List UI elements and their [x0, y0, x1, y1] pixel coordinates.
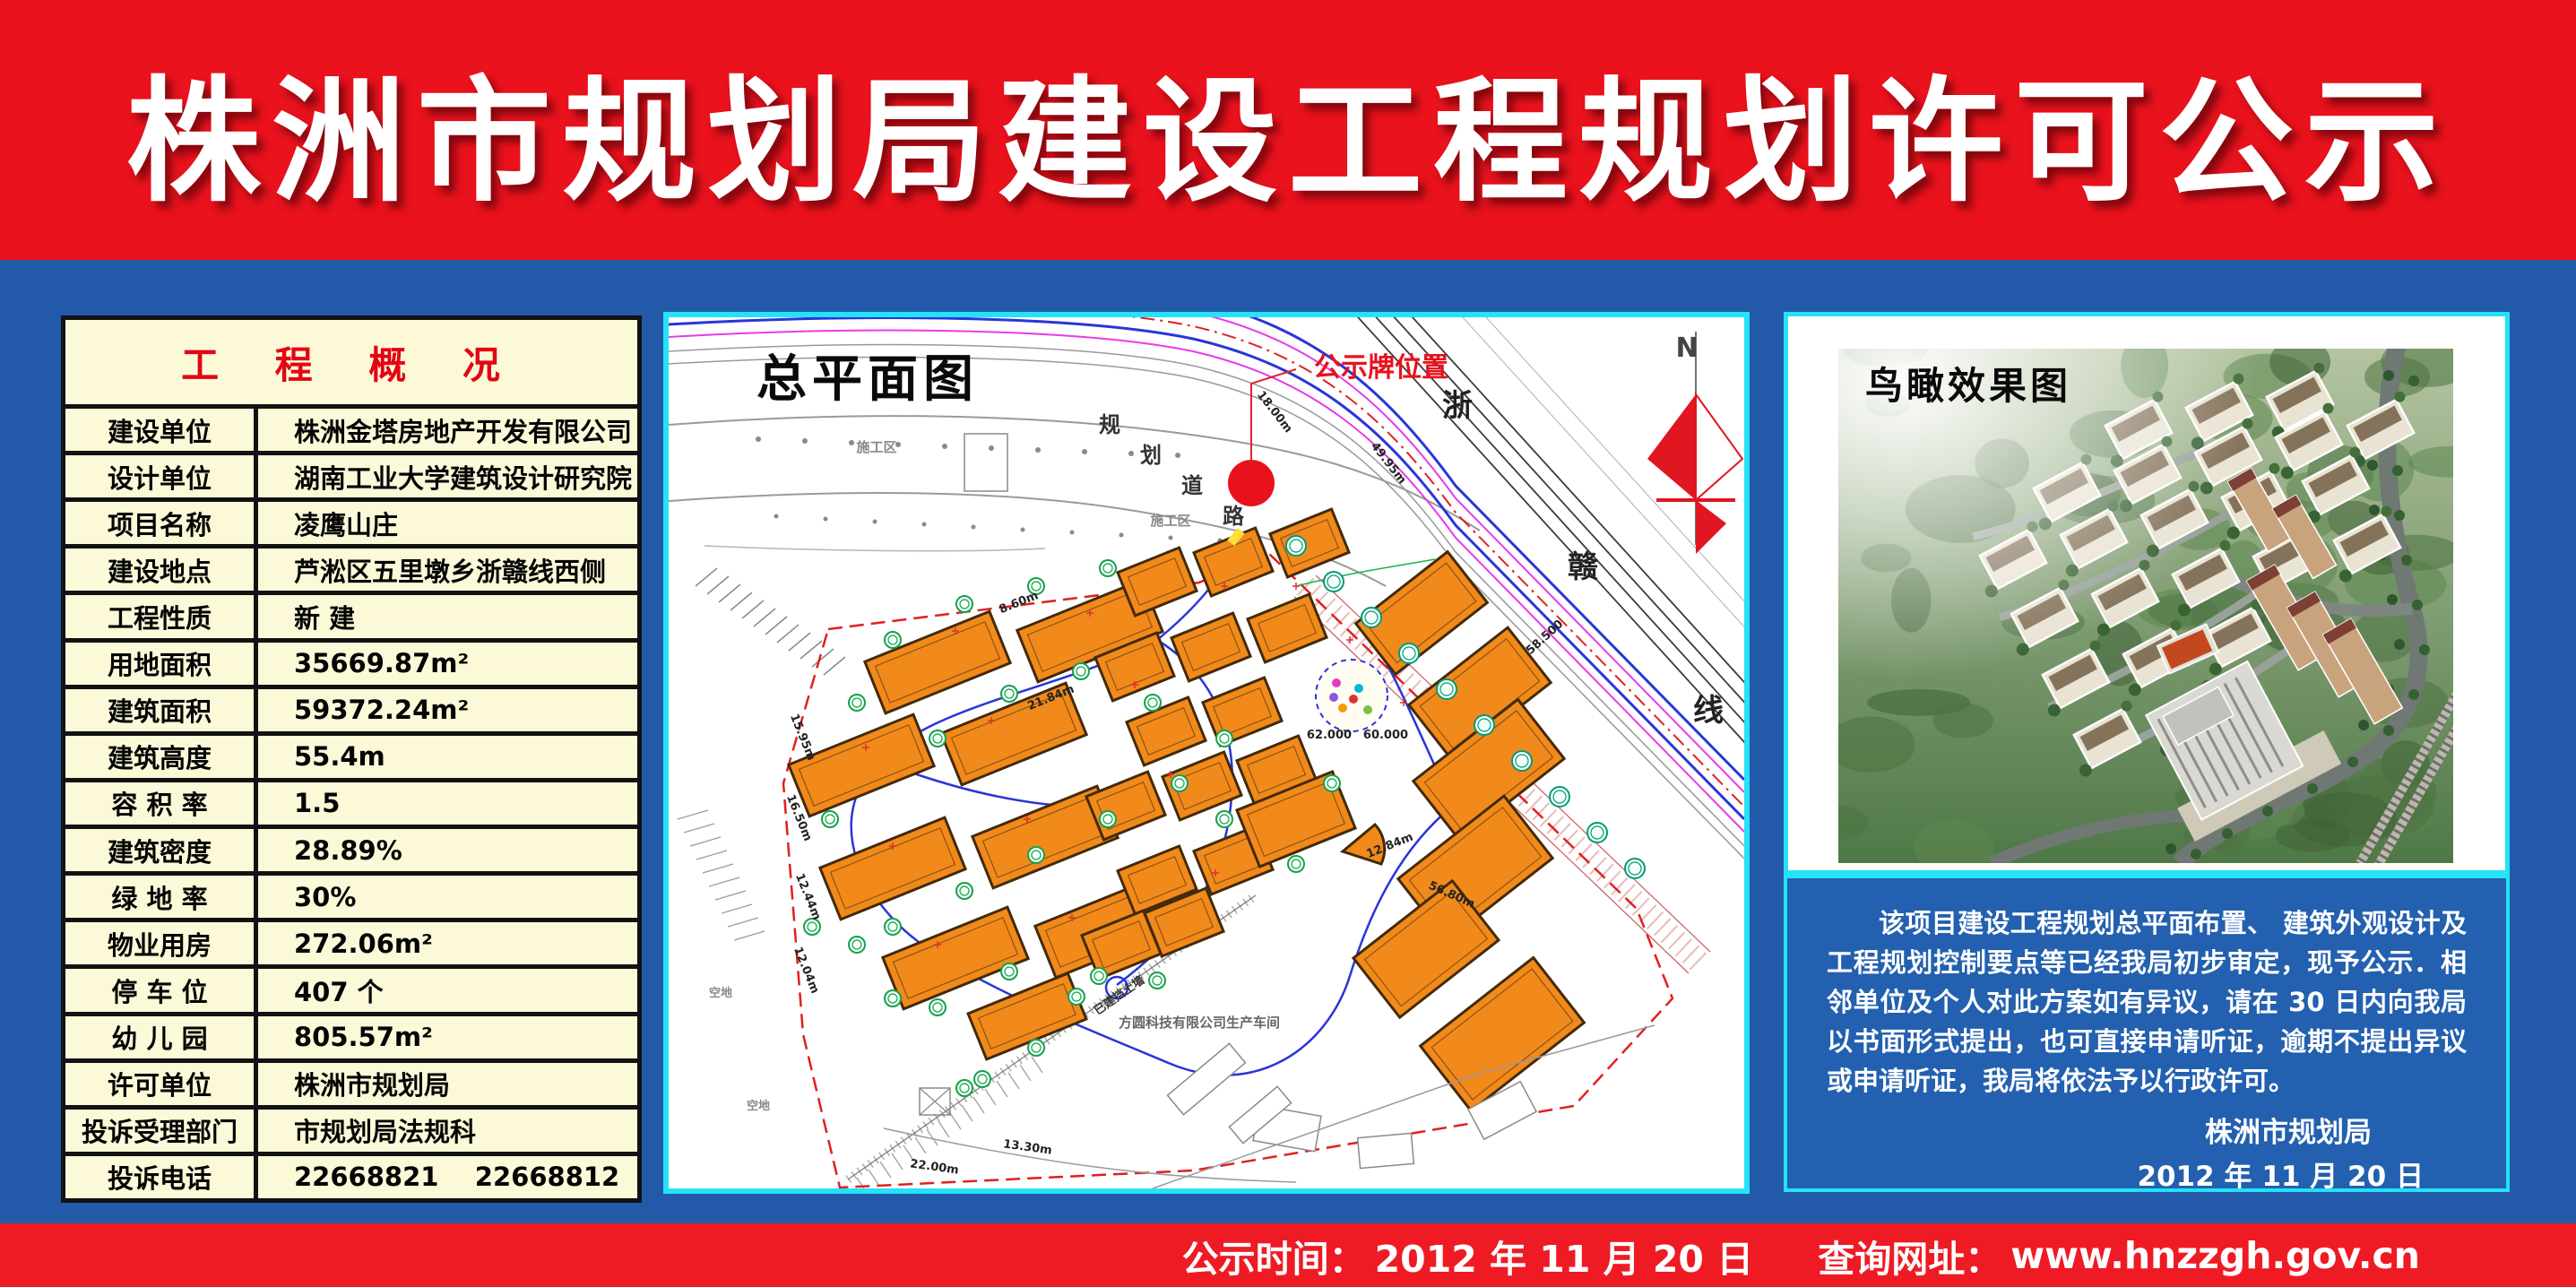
- notice-board-dot: [1228, 460, 1275, 506]
- row-value: 805.57m²: [258, 1016, 637, 1058]
- row-label: 用地面积: [65, 643, 258, 685]
- row-value: 407 个: [258, 969, 637, 1011]
- row-label: 停 车 位: [65, 969, 258, 1011]
- row-label: 建筑高度: [65, 736, 258, 778]
- row-value: 新 建: [258, 595, 637, 637]
- svg-text:施工区: 施工区: [856, 439, 896, 455]
- row-label: 建设单位: [65, 409, 258, 451]
- row-label: 容 积 率: [65, 782, 258, 825]
- svg-text:公示牌位置: 公示牌位置: [1314, 352, 1448, 384]
- notice-board: 株洲市规划局建设工程规划许可公示 工 程 概 况 建设单位株洲金塔房地产开发有限…: [0, 0, 2576, 1287]
- row-value: 芦淞区五里墩乡浙赣线西侧: [258, 548, 637, 591]
- table-row: 幼 儿 园805.57m²: [65, 1012, 637, 1058]
- row-value: 凌鹰山庄: [258, 502, 637, 544]
- row-label: 工程性质: [65, 595, 258, 637]
- svg-text:方圆科技有限公司生产车间: 方圆科技有限公司生产车间: [1119, 1015, 1280, 1031]
- table-row: 许可单位株洲市规划局: [65, 1058, 637, 1105]
- svg-text:62.000: 62.000: [1307, 729, 1352, 742]
- publish-time-value: 2012 年 11 月 20 日: [1375, 1229, 1754, 1283]
- row-label: 设计单位: [65, 455, 258, 497]
- notice-paragraph: 该项目建设工程规划总平面布置、 建筑外观设计及工程规划控制要点等已经我局初步审定…: [1827, 903, 2467, 1101]
- svg-text:线: 线: [1693, 693, 1724, 729]
- row-value: 35669.87m²: [258, 643, 637, 685]
- row-value: 株洲金塔房地产开发有限公司: [258, 409, 637, 451]
- footer-bar: 公示时间： 2012 年 11 月 20 日 查询网址： www.hnzzgh.…: [0, 1223, 2576, 1287]
- row-label: 建筑面积: [65, 689, 258, 731]
- signature: 株洲市规划局: [1787, 1110, 2372, 1150]
- row-value: 湖南工业大学建筑设计研究院: [258, 455, 637, 497]
- table-row: 停 车 位407 个: [65, 964, 637, 1011]
- row-label: 许可单位: [65, 1063, 258, 1105]
- table-row: 建设单位株洲金塔房地产开发有限公司: [65, 404, 637, 451]
- row-value: 1.5: [258, 782, 637, 825]
- row-label: 幼 儿 园: [65, 1016, 258, 1058]
- table-row: 投诉电话22668821 22668812: [65, 1152, 637, 1198]
- row-value: 28.89%: [258, 829, 637, 871]
- svg-text:浙: 浙: [1442, 388, 1473, 424]
- svg-text:道: 道: [1181, 473, 1203, 498]
- table-row: 绿 地 率30%: [65, 871, 637, 918]
- row-label: 投诉受理部门: [65, 1110, 258, 1152]
- notice-text-panel: 该项目建设工程规划总平面布置、 建筑外观设计及工程规划控制要点等已经我局初步审定…: [1784, 875, 2510, 1192]
- svg-text:空地: 空地: [709, 986, 732, 1000]
- page-title: 株洲市规划局建设工程规划许可公示: [126, 33, 2450, 228]
- svg-text:空地: 空地: [747, 1099, 770, 1113]
- row-value: 55.4m: [258, 736, 637, 778]
- svg-text:路: 路: [1223, 504, 1245, 529]
- row-label: 建筑密度: [65, 829, 258, 871]
- table-title: 工 程 概 况: [65, 320, 637, 404]
- row-label: 物业用房: [65, 922, 258, 964]
- table-row: 用地面积35669.87m²: [65, 638, 637, 685]
- site-plan-panel: N公示牌位置规划道路浙赣线施工区施工区方圆科技有限公司生产车间已建挡土墙空地空地…: [663, 312, 1750, 1194]
- table-row: 容 积 率1.5: [65, 778, 637, 825]
- svg-text:划: 划: [1140, 443, 1162, 468]
- row-value: 市规划局法规科: [258, 1110, 637, 1152]
- row-value: 30%: [258, 876, 637, 918]
- site-plan-drawing: N公示牌位置规划道路浙赣线施工区施工区方圆科技有限公司生产车间已建挡土墙空地空地…: [669, 317, 1744, 1188]
- svg-text:规: 规: [1099, 412, 1120, 437]
- row-value: 272.06m²: [258, 922, 637, 964]
- row-label: 建设地点: [65, 548, 258, 591]
- table-row: 建筑面积59372.24m²: [65, 685, 637, 731]
- signature-date: 2012 年 11 月 20 日: [1787, 1153, 2424, 1194]
- publish-time-label: 公示时间：: [1182, 1229, 1366, 1283]
- row-value: 59372.24m²: [258, 689, 637, 731]
- project-table: 工 程 概 况 建设单位株洲金塔房地产开发有限公司设计单位湖南工业大学建筑设计研…: [61, 315, 642, 1203]
- svg-text:施工区: 施工区: [1150, 513, 1190, 529]
- row-value: 株洲市规划局: [258, 1063, 637, 1105]
- site-plan-title: 总平面图: [756, 339, 979, 411]
- table-row: 投诉受理部门市规划局法规科: [65, 1105, 637, 1152]
- haze-overlay: [1838, 349, 2453, 863]
- row-label: 绿 地 率: [65, 876, 258, 918]
- bird-view-title: 鸟瞰效果图: [1865, 356, 2071, 410]
- playground: [1316, 660, 1387, 731]
- svg-text:赣: 赣: [1568, 549, 1599, 585]
- row-label: 项目名称: [65, 502, 258, 544]
- table-row: 建筑高度55.4m: [65, 731, 637, 778]
- bird-view-image: [1838, 349, 2453, 863]
- svg-text:N: N: [1675, 333, 1698, 364]
- svg-text:60.000: 60.000: [1363, 729, 1408, 742]
- bird-view-panel: 鸟瞰效果图: [1784, 312, 2510, 875]
- website-label: 查询网址：: [1818, 1229, 2001, 1283]
- table-row: 设计单位湖南工业大学建筑设计研究院: [65, 451, 637, 497]
- row-label: 投诉电话: [65, 1156, 258, 1198]
- table-row: 物业用房272.06m²: [65, 918, 637, 964]
- table-row: 项目名称凌鹰山庄: [65, 497, 637, 544]
- table-row: 工程性质新 建: [65, 591, 637, 637]
- header-banner: 株洲市规划局建设工程规划许可公示: [0, 0, 2576, 260]
- table-row: 建筑密度28.89%: [65, 825, 637, 871]
- website-value: www.hnzzgh.gov.cn: [2010, 1234, 2420, 1277]
- row-value: 22668821 22668812: [258, 1156, 637, 1198]
- table-row: 建设地点芦淞区五里墩乡浙赣线西侧: [65, 544, 637, 591]
